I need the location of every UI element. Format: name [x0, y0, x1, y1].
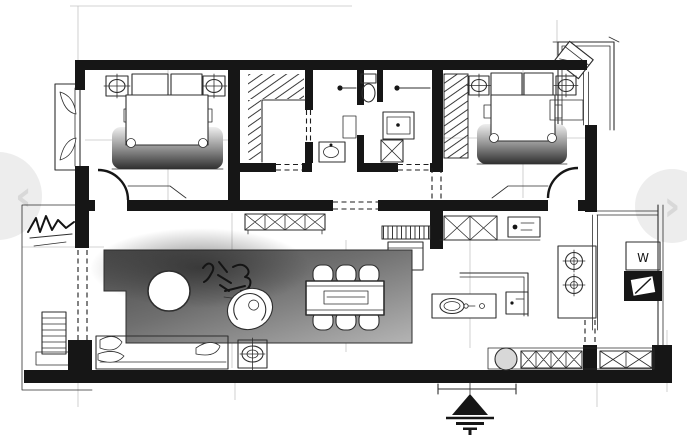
cushion-icon — [196, 342, 220, 355]
appliance-box — [508, 217, 540, 237]
door-swing-arc — [548, 168, 578, 198]
shelf — [343, 116, 356, 138]
round-sink-icon — [495, 348, 517, 370]
sideboard-x-icon — [245, 214, 325, 234]
floor-plan-drawing: W — [0, 0, 687, 435]
master-bedroom — [98, 74, 227, 200]
door-swing-arc — [98, 170, 128, 200]
bottom-counter — [488, 348, 654, 370]
nightstand-lamp-icon — [104, 74, 130, 98]
image-viewer: W ‹ › — [0, 0, 687, 435]
washer-label: W — [637, 251, 649, 265]
wardrobe-hanging-clothes-icon — [444, 74, 468, 158]
second-bedroom — [444, 72, 589, 198]
striped-bench-icon — [382, 226, 430, 239]
dining-table — [306, 281, 384, 315]
shower-base-icon — [381, 140, 403, 162]
top-right-balcony — [553, 37, 619, 130]
north-ground-symbol — [438, 383, 516, 435]
radiator-ladder-icon — [36, 312, 72, 365]
shower-head-icon — [337, 85, 356, 90]
nightstand-lamp-icon — [201, 74, 227, 98]
cabinet-x-icon — [440, 216, 540, 240]
walk-in-closet — [248, 74, 305, 162]
prep-box — [506, 292, 528, 314]
plant-icon — [28, 216, 74, 246]
bathroom-a — [319, 85, 356, 162]
rug-shading — [90, 228, 310, 308]
cushion-icon — [100, 336, 122, 350]
island-sink-icon — [432, 294, 496, 318]
washing-machine: W — [626, 242, 660, 270]
window-plant-icon — [60, 92, 76, 160]
shower-head-icon — [394, 85, 430, 90]
chevron-left-icon: ‹ — [15, 175, 32, 217]
cooktop-two-burners-icon — [558, 246, 596, 318]
bathroom-b — [361, 74, 430, 162]
kitchen — [432, 216, 654, 370]
hanging-clothes-icon — [248, 100, 261, 160]
bay-window — [55, 84, 80, 170]
cushion-icon — [98, 351, 124, 362]
hanging-clothes-icon — [248, 74, 304, 99]
bed-double — [477, 73, 567, 164]
vanity-sink-icon — [383, 112, 414, 139]
chevron-right-icon: › — [663, 185, 680, 227]
vanity-sink-icon — [319, 142, 345, 162]
appliance-cabinet-dark — [624, 271, 662, 301]
dining-area — [306, 265, 384, 330]
nightstand-lamp-icon — [467, 74, 491, 97]
round-coffee-table — [148, 271, 190, 311]
